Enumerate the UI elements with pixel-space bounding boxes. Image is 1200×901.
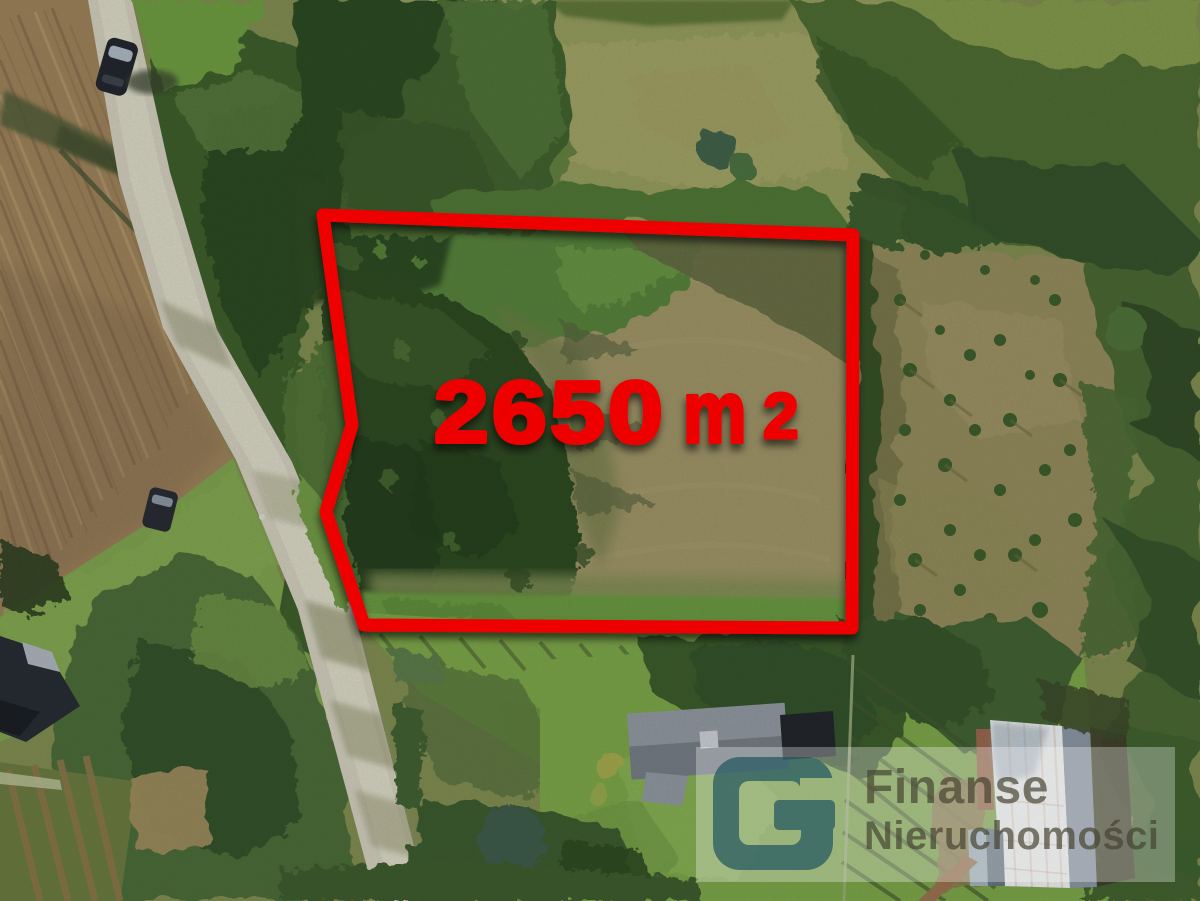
- svg-text:2650: 2650: [434, 363, 666, 460]
- svg-text:Finanse: Finanse: [864, 761, 1049, 814]
- svg-text:Nieruchomości: Nieruchomości: [864, 814, 1159, 858]
- svg-text:m: m: [683, 363, 746, 460]
- svg-text:2: 2: [763, 380, 799, 452]
